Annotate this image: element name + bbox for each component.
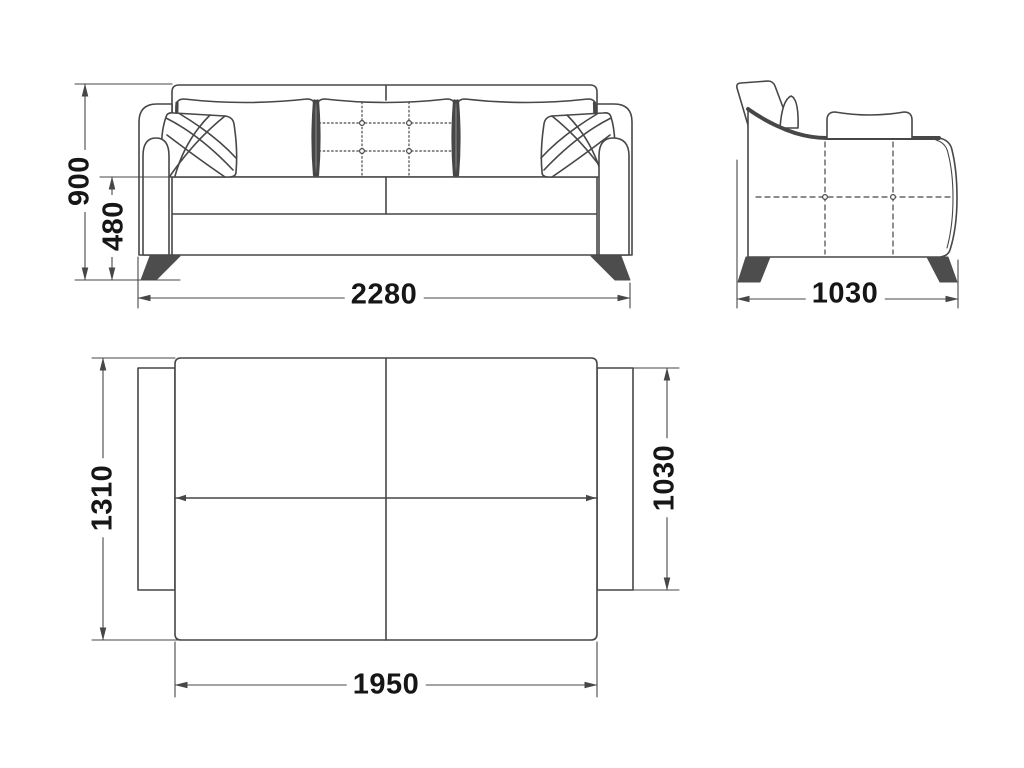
pillow-left	[162, 113, 237, 177]
leg-front-left	[141, 256, 180, 280]
back-cushion-center	[317, 99, 455, 177]
arm-scroll-left	[143, 138, 169, 255]
front-legs	[141, 256, 630, 280]
drawing-canvas: 900 480 2280 1030 1310 1950 1030	[0, 0, 1024, 768]
dimension-label-overall-width: 2280	[345, 280, 424, 311]
leg-side-right	[927, 257, 957, 282]
dimension-label-overall-height: 900	[65, 150, 96, 212]
front-view	[75, 84, 632, 308]
dimension-label-bed-width: 1310	[88, 459, 119, 538]
side-small-pillow	[780, 96, 798, 128]
dimension-label-overall-depth: 1030	[806, 279, 885, 310]
sofa-technical-drawing	[0, 0, 1024, 768]
dimension-label-seat-height: 480	[99, 195, 130, 257]
armrest-right-plan	[597, 368, 633, 590]
leg-side-left	[738, 257, 770, 282]
leg-front-right	[591, 256, 630, 280]
seat-base	[168, 177, 600, 255]
side-view	[737, 81, 958, 308]
armrest-left-plan	[138, 368, 175, 590]
side-armrest-cushion	[827, 112, 912, 138]
plan-view	[92, 358, 679, 697]
dimension-label-seat-depth: 1030	[650, 439, 681, 518]
arm-scroll-right	[599, 138, 629, 255]
dimension-label-bed-length: 1950	[347, 670, 426, 701]
